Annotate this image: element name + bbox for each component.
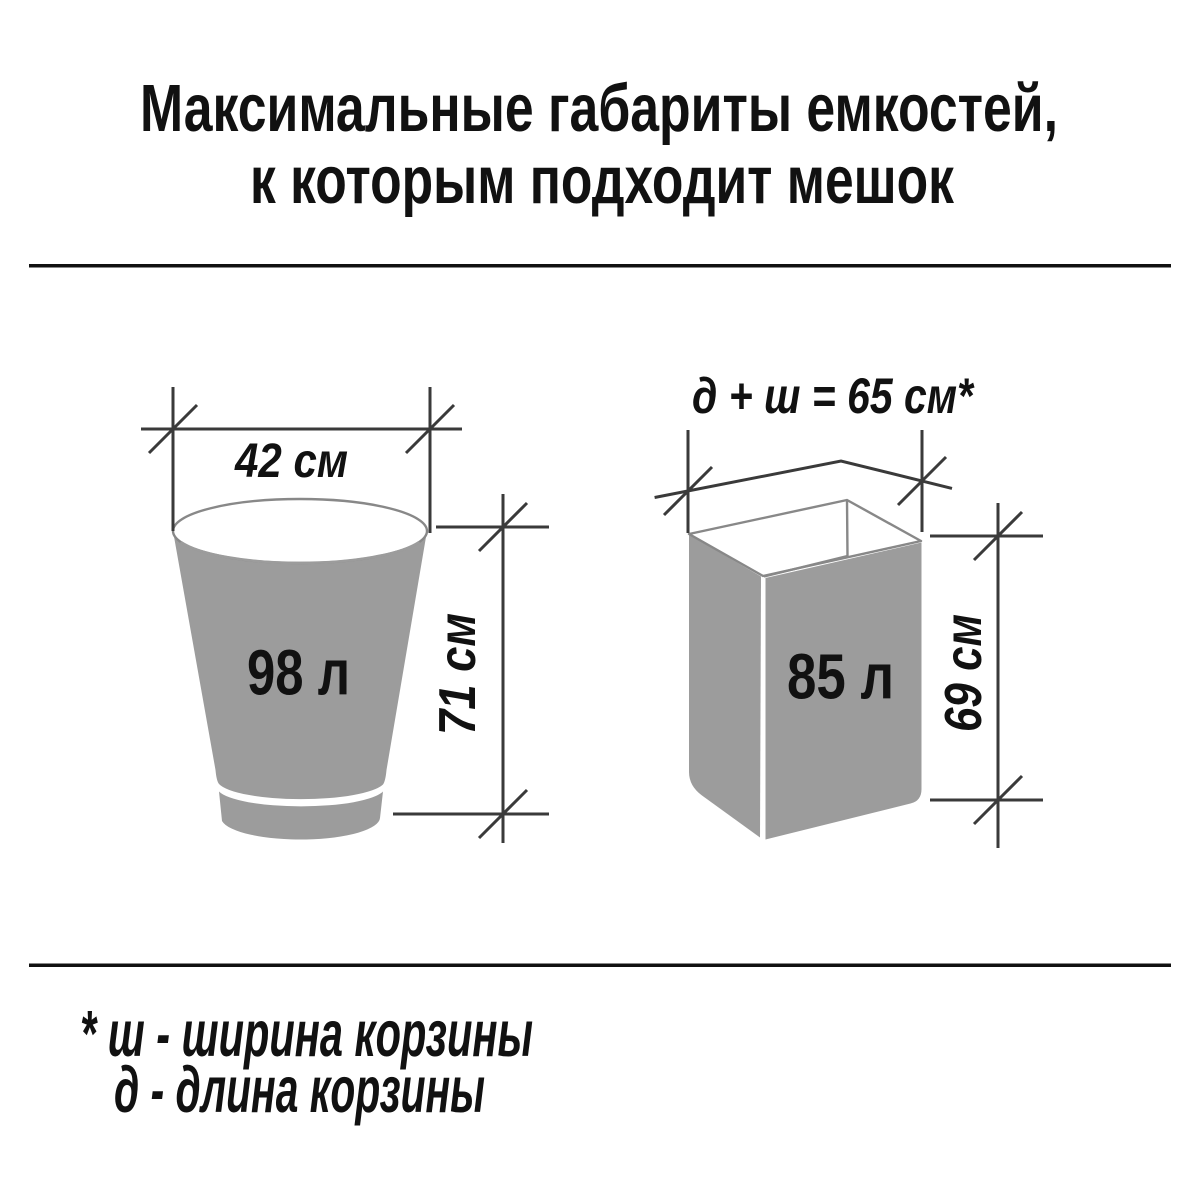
svg-text:71 см: 71 см: [429, 613, 487, 735]
svg-text:42 см: 42 см: [234, 435, 348, 488]
svg-text:д + ш = 65 см*: д + ш = 65 см*: [692, 368, 975, 424]
svg-text:к которым подходит мешок: к которым подходит мешок: [250, 143, 954, 218]
svg-text:д - длина корзины: д - длина корзины: [114, 1053, 485, 1126]
svg-text:69 см: 69 см: [935, 614, 993, 732]
svg-text:98 л: 98 л: [247, 637, 350, 709]
svg-text:Максимальные габариты емкостей: Максимальные габариты емкостей,: [140, 71, 1058, 146]
svg-text:85 л: 85 л: [787, 640, 894, 712]
